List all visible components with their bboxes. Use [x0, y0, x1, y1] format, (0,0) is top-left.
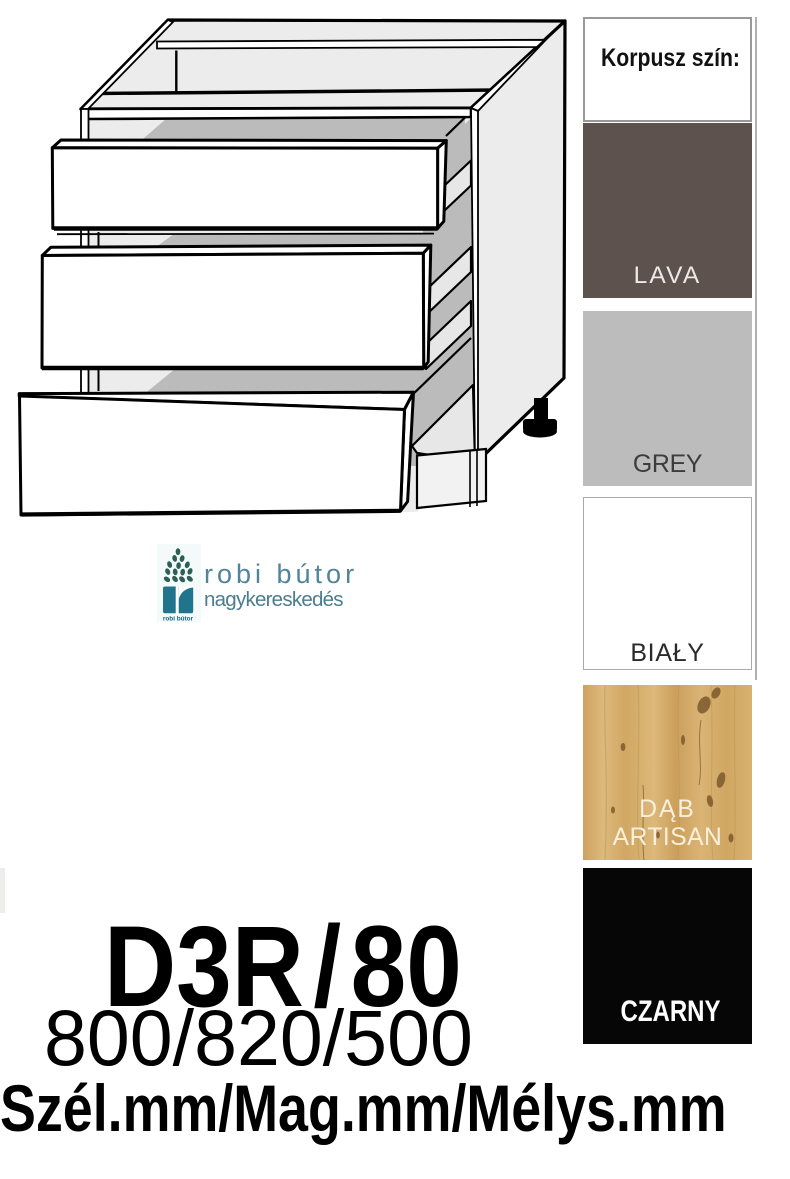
svg-text:nagykereskedés: nagykereskedés: [204, 588, 343, 611]
svg-text:robi bútor: robi bútor: [163, 616, 194, 623]
svg-text:robi bútor: robi bútor: [204, 559, 358, 589]
